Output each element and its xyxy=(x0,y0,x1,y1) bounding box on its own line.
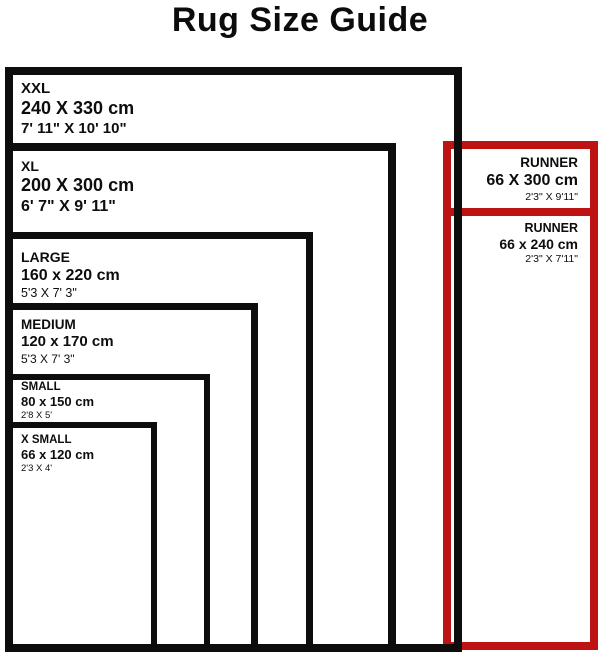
rug-size-cm: 66 x 120 cm xyxy=(21,447,94,463)
rug-size-cm: 66 X 300 cm xyxy=(486,171,578,191)
rug-size-ft: 5'3 X 7' 3" xyxy=(21,352,114,367)
rug-size-ft: 2'3" X 9'11" xyxy=(486,191,578,204)
rug-size-ft: 2'3" X 7'11" xyxy=(499,253,578,266)
rug-size-cm: 66 x 240 cm xyxy=(499,236,578,253)
rug-label-large: LARGE 160 x 220 cm 5'3 X 7' 3" xyxy=(21,249,120,301)
page-title: Rug Size Guide xyxy=(0,1,600,40)
rug-size-cm: 240 X 330 cm xyxy=(21,98,134,120)
rug-label-xl: XL 200 X 300 cm 6' 7" X 9' 11" xyxy=(21,158,134,217)
runner-rect-240 xyxy=(443,208,598,650)
rug-name: LARGE xyxy=(21,249,120,266)
rug-size-ft: 2'8 X 5' xyxy=(21,410,94,422)
rug-name: X SMALL xyxy=(21,433,94,447)
rug-label-medium: MEDIUM 120 x 170 cm 5'3 X 7' 3" xyxy=(21,317,114,366)
rug-label-xxl: XXL 240 X 330 cm 7' 11" X 10' 10" xyxy=(21,80,134,139)
runner-label-240: RUNNER 66 x 240 cm 2'3" X 7'11" xyxy=(499,221,578,266)
rug-label-xsmall: X SMALL 66 x 120 cm 2'3 X 4' xyxy=(21,433,94,474)
rug-size-cm: 120 x 170 cm xyxy=(21,333,114,351)
runner-label-300: RUNNER 66 X 300 cm 2'3" X 9'11" xyxy=(486,155,578,204)
rug-name: XL xyxy=(21,158,134,175)
rug-name: RUNNER xyxy=(499,221,578,236)
rug-name: MEDIUM xyxy=(21,317,114,333)
rug-size-ft: 5'3 X 7' 3" xyxy=(21,286,120,301)
rug-name: RUNNER xyxy=(486,155,578,171)
rug-size-cm: 200 X 300 cm xyxy=(21,175,134,197)
rug-size-ft: 7' 11" X 10' 10" xyxy=(21,120,134,138)
rug-size-ft: 6' 7" X 9' 11" xyxy=(21,197,134,217)
rug-size-ft: 2'3 X 4' xyxy=(21,463,94,475)
rug-size-guide-diagram: Rug Size Guide XXL 240 X 330 cm 7' 11" X… xyxy=(0,0,600,659)
rug-label-small: SMALL 80 x 150 cm 2'8 X 5' xyxy=(21,380,94,421)
rug-name: XXL xyxy=(21,80,134,98)
rug-size-cm: 80 x 150 cm xyxy=(21,394,94,410)
rug-size-cm: 160 x 220 cm xyxy=(21,266,120,286)
rug-name: SMALL xyxy=(21,380,94,394)
